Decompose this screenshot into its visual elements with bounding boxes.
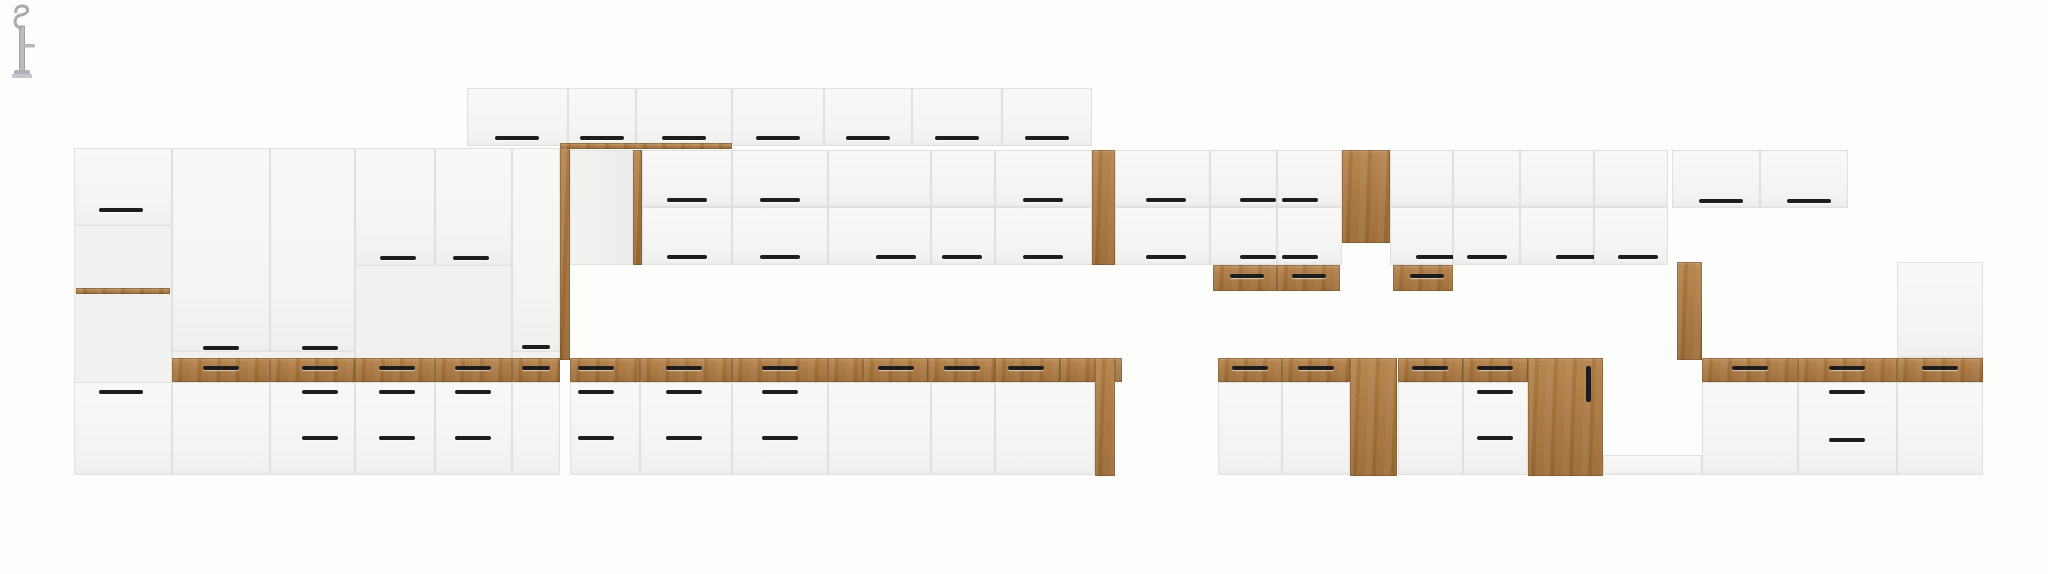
oven-knob: [441, 271, 445, 275]
countertop: [570, 347, 1680, 358]
oven-knob: [1808, 269, 1813, 274]
tower-oven-bar: [84, 310, 162, 316]
oven-knob: [374, 271, 378, 275]
oak-drawer-handle: [1232, 366, 1268, 370]
countertop-raised: [1674, 252, 1986, 262]
display-dot: [1839, 270, 1843, 274]
oak-door-handle-vertical: [1586, 366, 1591, 402]
underbox-handle: [1292, 274, 1326, 278]
oak-drawer: [172, 358, 270, 382]
big-oven-black-strip: [1702, 352, 1897, 358]
narrow-base-door: [512, 382, 560, 475]
oven-knob: [1610, 365, 1614, 369]
wall-handle: [1240, 198, 1276, 202]
dishwasher-handle-bar: [1130, 378, 1210, 384]
oak-drawer-handle: [878, 366, 914, 370]
oak-drawer-handle: [1732, 366, 1768, 370]
wall-handle: [942, 255, 982, 259]
wall-handle: [1699, 199, 1743, 203]
tower-oven-display: [100, 297, 136, 305]
raised-bank-base-drawers: [1798, 382, 1897, 475]
oak-drawer: [355, 358, 435, 382]
drawer-handle: [666, 390, 702, 394]
floor-shadow: [70, 491, 1982, 504]
oak-underbox: [1277, 265, 1340, 291]
sink-rim: [863, 346, 997, 354]
wall-door: [931, 150, 995, 207]
oak-drawer: [1398, 358, 1463, 382]
oak-drawer-handle: [1477, 366, 1513, 370]
pantry-handle: [203, 346, 239, 350]
oak-drawer: [1798, 358, 1897, 382]
oven-tower-upper-door: [435, 148, 512, 266]
oak-door-seam: [1565, 358, 1566, 476]
wall-door: [1453, 150, 1520, 207]
wall-handle: [1787, 199, 1831, 203]
shelf-slot: [1347, 216, 1385, 239]
display-dot: [1863, 270, 1867, 274]
wall-handle: [1556, 255, 1596, 259]
shelf-slot: [1095, 244, 1112, 262]
underbox-handle: [1230, 274, 1264, 278]
oak-drawer: [1463, 358, 1528, 382]
oak-drawer: [1702, 358, 1798, 382]
oak-underbox: [1213, 265, 1277, 291]
wall-handle: [1146, 198, 1186, 202]
drawer-handle: [379, 436, 415, 440]
oven-knob: [1688, 365, 1692, 369]
drawer-handle: [455, 390, 491, 394]
oven-knob: [447, 271, 451, 275]
oak-drawer: [640, 358, 732, 382]
oven-knob: [425, 271, 429, 275]
tower-handle: [99, 208, 143, 212]
sink-base-door: [828, 382, 931, 475]
oven-bar: [1714, 290, 1786, 297]
top-row-handle: [846, 136, 890, 140]
sink-base-door: [931, 382, 995, 475]
drawer-seam: [355, 428, 435, 429]
oak-drawer: [570, 358, 640, 382]
drawer-handle: [1477, 436, 1513, 440]
pantry-handle: [302, 346, 338, 350]
drawer-handle: [578, 436, 614, 440]
oven-display-yellow: [1746, 270, 1760, 274]
base-door: [995, 382, 1095, 475]
kitchen-product-render: [0, 0, 2048, 574]
top-row-handle: [580, 136, 624, 140]
tower-top-door: [74, 148, 172, 226]
oak-drawer: [863, 358, 928, 382]
oven-knob: [368, 271, 372, 275]
undercounter-oven-strip: [1606, 446, 1699, 454]
drawer-seam: [570, 428, 640, 429]
oak-drawer: [928, 358, 995, 382]
oven-bar: [1812, 290, 1885, 297]
wall-handle: [1023, 198, 1063, 202]
shelf-slot: [1347, 186, 1385, 212]
drawer-seam: [1798, 430, 1897, 431]
oak-drawer: [270, 358, 355, 382]
shelf-slot: [1098, 398, 1112, 428]
oak-drawer: [995, 358, 1060, 382]
microwave-bar: [90, 240, 156, 245]
oven-tower-upper-door: [355, 148, 435, 266]
oak-drawer: [1897, 358, 1983, 382]
base-door: [1398, 382, 1463, 475]
drawer-seam: [1463, 428, 1528, 429]
oak-underbox: [1393, 265, 1453, 291]
base-door: [1218, 382, 1282, 475]
oak-drawer-handle: [203, 366, 239, 370]
oven-knob: [1884, 269, 1889, 274]
oven-knob: [504, 271, 508, 275]
wall-handle: [1618, 255, 1658, 259]
oak-drawer-handle: [944, 366, 980, 370]
top-row-oak-underline: [560, 143, 732, 149]
dishwasher-control-band: [1122, 362, 1218, 372]
wall-filler-panel: [570, 150, 633, 265]
wall-handle: [1416, 255, 1456, 259]
raised-side-panel: [1677, 262, 1702, 360]
oak-drawer: [1282, 358, 1350, 382]
oven-bar: [443, 291, 500, 297]
oak-trim-vertical: [560, 148, 570, 360]
oak-drawer: [1115, 358, 1122, 382]
top-row-handle: [495, 136, 539, 140]
oak-drawer: [1060, 358, 1095, 382]
drawer-handle: [302, 390, 338, 394]
wall-handle: [1282, 198, 1318, 202]
oven-display-yellow: [1644, 367, 1658, 371]
shelf-slot: [1355, 386, 1392, 424]
drawer-handle: [762, 390, 798, 394]
oak-drawer: [828, 358, 863, 382]
oak-drawer-handle: [762, 366, 798, 370]
oak-drawer-handle: [1298, 366, 1334, 370]
wall-handle: [1240, 255, 1276, 259]
drawer-seam: [732, 428, 828, 429]
oak-drawer-handle: [1922, 366, 1958, 370]
display-dot: [1765, 270, 1769, 274]
oven-tower-handle: [380, 256, 416, 260]
oak-drawer-handle: [302, 366, 338, 370]
oven-tower-handle: [453, 256, 489, 260]
drawer-seam: [270, 428, 355, 429]
drawer-handle: [379, 390, 415, 394]
oven-bar: [370, 291, 427, 297]
oven-knob: [1777, 269, 1782, 274]
oak-drawer: [1218, 358, 1282, 382]
top-row-handle: [756, 136, 800, 140]
oven-bar: [1614, 386, 1691, 392]
top-row-handle: [662, 136, 706, 140]
oak-drawer-handle: [1829, 366, 1865, 370]
plinth: [174, 477, 1982, 492]
narrow-handle: [522, 345, 550, 349]
raised-bank-base-door: [1897, 382, 1983, 475]
oak-drawer-handle: [578, 366, 614, 370]
oven-knob: [1719, 269, 1724, 274]
shelf-slot: [1355, 430, 1392, 468]
shelf-slot: [1095, 203, 1112, 220]
wall-door: [1390, 150, 1453, 207]
pantry-door: [270, 148, 355, 352]
oven-display-yellow: [391, 274, 403, 277]
wall-handle: [1023, 255, 1063, 259]
oak-drawer: [732, 358, 828, 382]
drawer-handle: [762, 436, 798, 440]
tower-handle: [99, 390, 143, 394]
oven-knob: [1695, 365, 1699, 369]
narrow-tall-door: [512, 148, 560, 352]
drawer-handle: [455, 436, 491, 440]
wall-handle: [667, 255, 707, 259]
oven-knob: [1875, 269, 1880, 274]
wall-handle: [876, 255, 916, 259]
underbox-handle: [1410, 274, 1444, 278]
oak-drawer-handle: [522, 366, 550, 370]
wall-door: [1520, 150, 1594, 207]
oven-knob: [1786, 269, 1791, 274]
oven-knob: [1617, 365, 1621, 369]
top-row-handle: [1025, 136, 1069, 140]
wall-handle: [1146, 255, 1186, 259]
drawer-handle: [1829, 438, 1865, 442]
shelf-slot: [1095, 176, 1112, 199]
drawer-seam: [435, 428, 512, 429]
drawer-handle: [1829, 390, 1865, 394]
shelf-slot: [1095, 224, 1112, 240]
oven-display-yellow: [464, 274, 476, 277]
tower-oven-display: [142, 298, 152, 304]
drawer-handle: [578, 390, 614, 394]
oven-knob: [498, 271, 502, 275]
raised-bank-base-door: [1702, 382, 1798, 475]
shelf-slot: [1095, 153, 1112, 172]
faucet-icon: [0, 0, 44, 80]
oak-drawer: [435, 358, 512, 382]
oven-knob: [1710, 269, 1715, 274]
wall-door: [828, 150, 931, 207]
pantry-base-door: [172, 382, 270, 475]
wall-handle: [760, 255, 800, 259]
drawer-handle: [666, 436, 702, 440]
oven-knob: [1817, 269, 1822, 274]
shelf-slot: [1098, 432, 1112, 462]
shelf-slot: [1098, 364, 1112, 394]
drawer-handle: [302, 436, 338, 440]
wall-handle: [1467, 255, 1507, 259]
oak-drawer: [512, 358, 560, 382]
pantry-door: [172, 148, 270, 352]
wall-door: [1594, 150, 1668, 207]
undercounter-oven-filler: [1603, 455, 1702, 475]
door-seam: [1060, 382, 1061, 475]
oak-drawer-handle: [1412, 366, 1448, 370]
display-dot: [1741, 270, 1745, 274]
wall-handle: [667, 198, 707, 202]
drawer-handle: [1477, 390, 1513, 394]
tower-oven-glass: [84, 320, 162, 378]
drawer-seam: [640, 428, 732, 429]
base-door: [1282, 382, 1350, 475]
raised-bank-end-panel: [1897, 262, 1983, 358]
tower-base-door: [74, 382, 172, 475]
top-row-handle: [935, 136, 979, 140]
shelf-slot: [1347, 155, 1385, 182]
oven-display-yellow: [1844, 270, 1858, 274]
oak-trim-vertical: [633, 150, 642, 265]
oak-drawer-handle: [666, 366, 702, 370]
oak-drawer-handle: [379, 366, 415, 370]
oak-drawer-handle: [1008, 366, 1044, 370]
wall-handle: [1282, 255, 1318, 259]
wall-handle: [760, 198, 800, 202]
plinth: [80, 477, 168, 491]
oak-drawer-handle: [455, 366, 491, 370]
